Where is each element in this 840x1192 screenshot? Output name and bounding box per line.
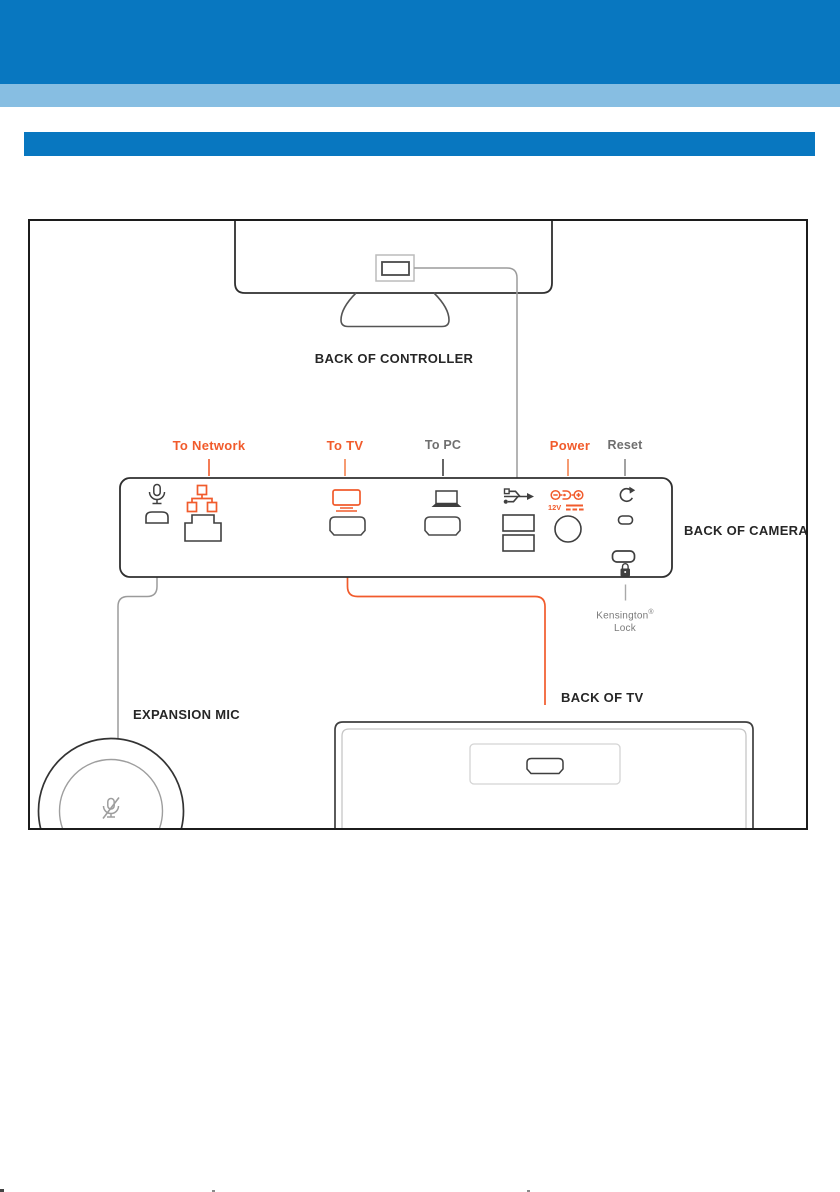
tv-hdmi-port <box>527 759 563 774</box>
expansion-mic-port <box>146 512 168 523</box>
connection-diagram: 12V <box>28 219 808 830</box>
reset-pinhole <box>619 516 633 524</box>
tv-back-outline <box>335 722 753 828</box>
expansion-mic-label: EXPANSION MIC <box>133 707 313 722</box>
hdmi-pc-port <box>425 517 460 535</box>
controller-stand <box>341 293 449 327</box>
controller-usb-port <box>382 262 409 275</box>
power-voltage-label: 12V <box>548 503 561 512</box>
back-of-camera-label: BACK OF CAMERA <box>646 523 808 538</box>
usb-port-1 <box>503 515 534 531</box>
expansion-mic-device <box>39 739 184 829</box>
hdmi-tv-port <box>330 517 365 535</box>
section-title-bar <box>24 132 815 156</box>
power-jack <box>555 516 581 542</box>
to-network-label: To Network <box>139 438 279 453</box>
label-ticks <box>209 459 625 476</box>
to-pc-label: To PC <box>393 438 493 452</box>
to-tv-label: To TV <box>295 438 395 453</box>
kensington-slot <box>613 551 635 562</box>
usb-port-2 <box>503 535 534 551</box>
kensington-lock-label: Kensington® Lock <box>565 606 685 635</box>
back-of-controller-label: BACK OF CONTROLLER <box>284 351 504 366</box>
header-banner-accent <box>0 84 840 107</box>
header-banner <box>0 0 840 84</box>
reset-label: Reset <box>575 438 675 452</box>
manual-page: 12V <box>0 0 840 1192</box>
controller-outline <box>235 221 552 327</box>
back-of-tv-label: BACK OF TV <box>561 690 741 705</box>
